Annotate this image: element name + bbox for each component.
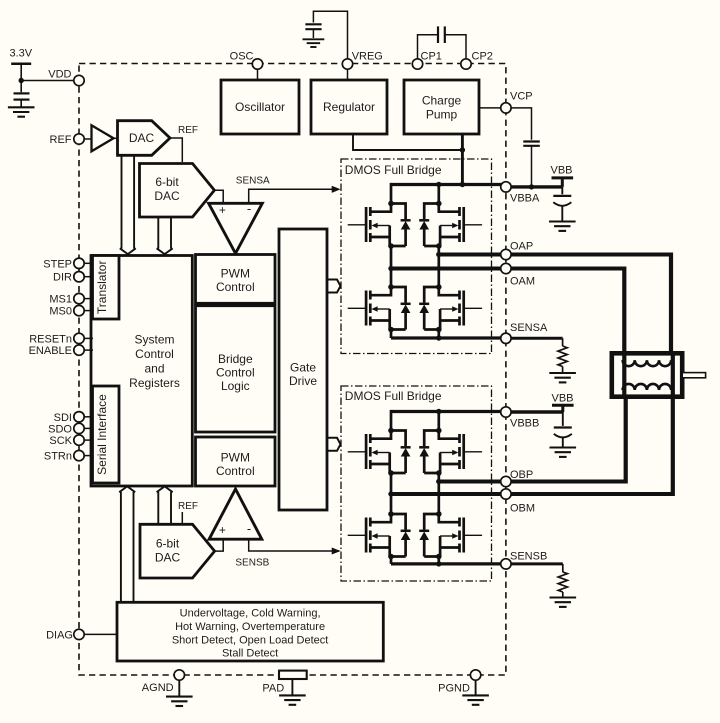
svg-text:-: - bbox=[247, 201, 251, 216]
svg-text:REF: REF bbox=[178, 125, 198, 136]
svg-text:DMOS Full Bridge: DMOS Full Bridge bbox=[345, 163, 442, 177]
svg-text:Translator: Translator bbox=[95, 261, 109, 315]
svg-text:Drive: Drive bbox=[289, 374, 317, 388]
svg-text:VCP: VCP bbox=[510, 91, 533, 103]
svg-text:DIR: DIR bbox=[53, 272, 72, 284]
svg-text:OSC: OSC bbox=[230, 51, 254, 63]
svg-text:OAM: OAM bbox=[510, 276, 535, 288]
svg-text:OBP: OBP bbox=[510, 469, 533, 481]
svg-text:VBBB: VBBB bbox=[510, 418, 539, 430]
svg-text:Oscillator: Oscillator bbox=[235, 100, 285, 114]
svg-text:Control: Control bbox=[135, 347, 174, 361]
svg-text:Short Detect, Open Load Detect: Short Detect, Open Load Detect bbox=[172, 634, 329, 646]
svg-text:REF: REF bbox=[50, 134, 72, 146]
svg-text:SENSB: SENSB bbox=[235, 558, 269, 569]
svg-text:STEP: STEP bbox=[43, 258, 72, 270]
svg-text:System: System bbox=[134, 333, 174, 347]
svg-text:6-bit: 6-bit bbox=[155, 175, 179, 189]
svg-text:Control: Control bbox=[216, 464, 255, 478]
svg-text:DAC: DAC bbox=[129, 131, 155, 145]
svg-text:Regulator: Regulator bbox=[323, 100, 375, 114]
svg-text:OAP: OAP bbox=[510, 241, 533, 253]
svg-text:SDO: SDO bbox=[48, 423, 72, 435]
svg-text:DAC: DAC bbox=[155, 550, 181, 564]
svg-text:Logic: Logic bbox=[221, 379, 250, 393]
svg-text:Hot Warning, Overtemperature: Hot Warning, Overtemperature bbox=[175, 621, 325, 633]
svg-text:DMOS Full Bridge: DMOS Full Bridge bbox=[345, 389, 442, 403]
svg-text:STRn: STRn bbox=[44, 451, 72, 463]
svg-text:Registers: Registers bbox=[129, 376, 180, 390]
svg-text:+: + bbox=[219, 203, 226, 217]
svg-text:Gate: Gate bbox=[290, 361, 316, 375]
svg-text:CP1: CP1 bbox=[421, 51, 442, 63]
svg-text:SENSA: SENSA bbox=[510, 322, 548, 334]
svg-text:VREG: VREG bbox=[352, 51, 383, 63]
svg-text:Control: Control bbox=[216, 365, 255, 379]
svg-text:3.3V: 3.3V bbox=[10, 48, 33, 60]
svg-text:MS0: MS0 bbox=[49, 306, 72, 318]
svg-text:Charge: Charge bbox=[422, 94, 462, 108]
svg-text:PAD: PAD bbox=[262, 683, 284, 695]
svg-text:VDD: VDD bbox=[48, 69, 71, 81]
svg-text:Serial Interface: Serial Interface bbox=[95, 394, 109, 475]
svg-text:CP2: CP2 bbox=[472, 51, 493, 63]
svg-text:SDI: SDI bbox=[54, 412, 72, 424]
svg-text:AGND: AGND bbox=[142, 682, 174, 694]
svg-text:Stall Detect: Stall Detect bbox=[222, 648, 278, 660]
svg-text:PGND: PGND bbox=[438, 683, 470, 695]
svg-text:SENSB: SENSB bbox=[510, 551, 547, 563]
svg-text:SENSA: SENSA bbox=[236, 175, 270, 186]
svg-text:REF: REF bbox=[178, 501, 198, 512]
svg-text:6-bit: 6-bit bbox=[156, 537, 180, 551]
svg-text:Undervoltage, Cold Warning,: Undervoltage, Cold Warning, bbox=[180, 607, 321, 619]
svg-text:VBB: VBB bbox=[552, 393, 574, 405]
svg-text:VBBA: VBBA bbox=[510, 193, 540, 205]
svg-text:Pump: Pump bbox=[426, 108, 458, 122]
svg-text:MS1: MS1 bbox=[49, 294, 72, 306]
svg-text:PWM: PWM bbox=[221, 451, 250, 465]
svg-text:SCK: SCK bbox=[49, 435, 72, 447]
svg-text:VBB: VBB bbox=[551, 165, 573, 177]
svg-text:DIAG: DIAG bbox=[46, 629, 73, 641]
svg-text:and: and bbox=[144, 362, 164, 376]
svg-text:Control: Control bbox=[216, 280, 255, 294]
svg-text:PWM: PWM bbox=[221, 267, 250, 281]
svg-text:DAC: DAC bbox=[154, 189, 180, 203]
svg-text:-: - bbox=[247, 521, 251, 536]
svg-text:RESETn: RESETn bbox=[29, 333, 72, 345]
svg-text:ENABLE: ENABLE bbox=[29, 345, 72, 357]
svg-text:+: + bbox=[219, 523, 226, 537]
svg-text:Bridge: Bridge bbox=[218, 352, 253, 366]
svg-text:OBM: OBM bbox=[510, 503, 535, 515]
